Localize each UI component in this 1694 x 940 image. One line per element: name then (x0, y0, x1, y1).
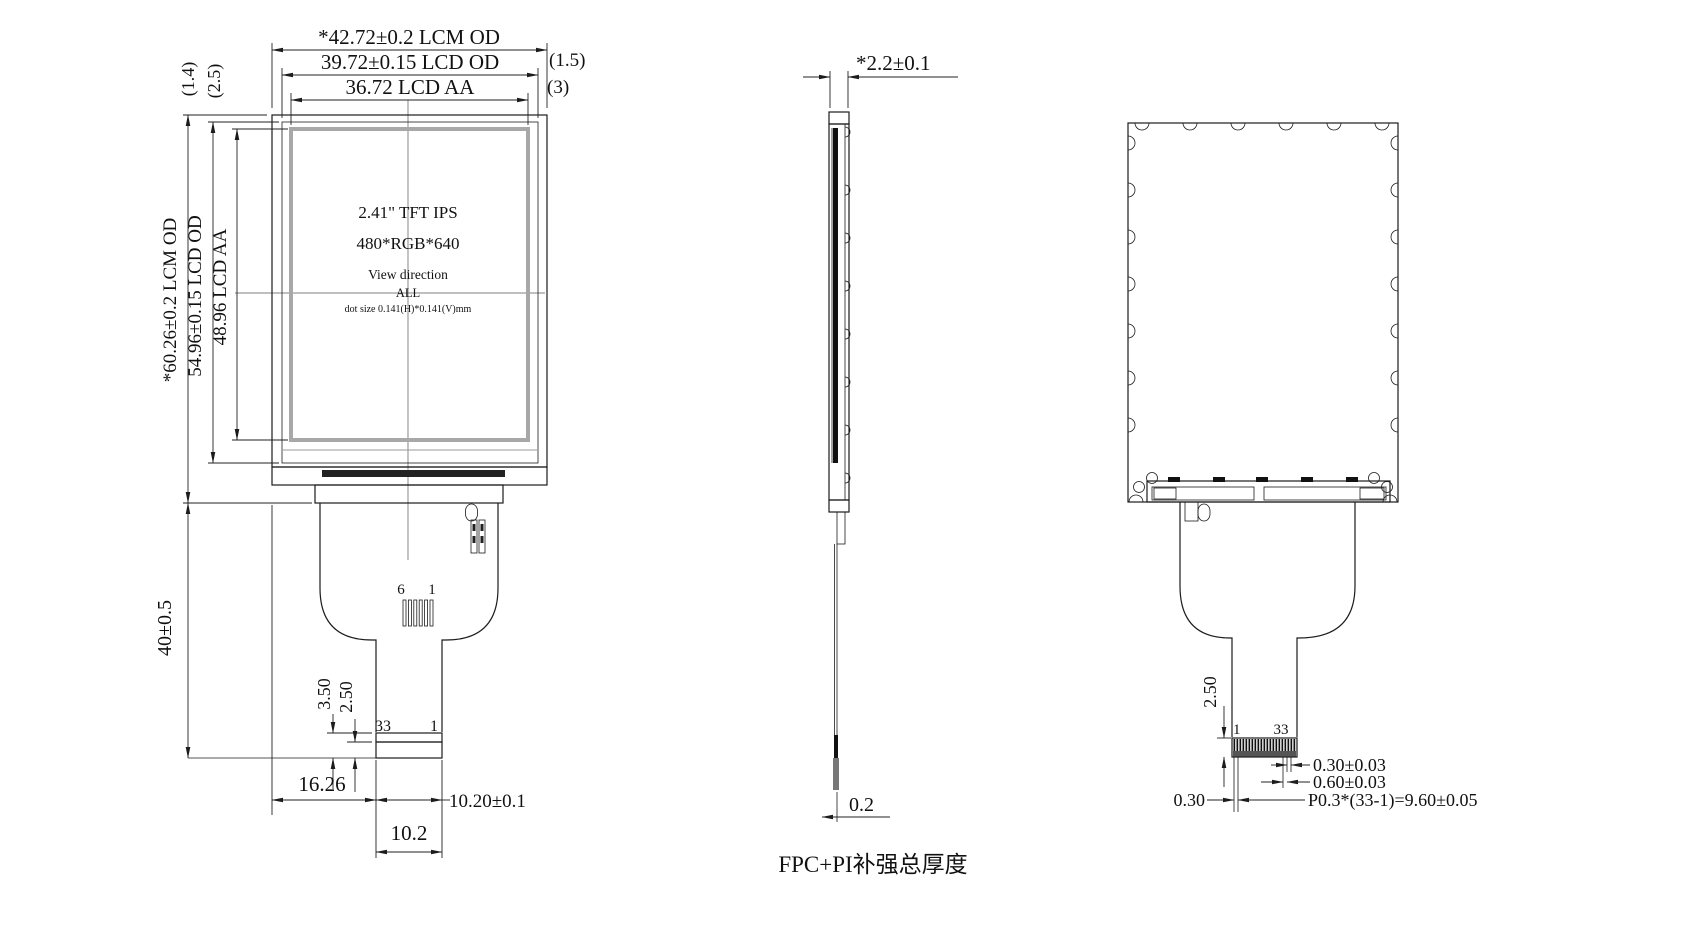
connector-contact-hatch (376, 742, 442, 758)
front-left-dimensions: *60.26±0.2 LCM OD 54.96±0.15 LCD OD 48.9… (154, 115, 376, 758)
side-fpc-fold (837, 512, 845, 544)
dim-lcm-height: *60.26±0.2 LCM OD (160, 218, 181, 383)
dim-right-margin-lcd: (1.5) (549, 50, 585, 71)
fpc-right-edge (442, 503, 498, 732)
dim-stiffener-length: 3.50 (314, 678, 334, 710)
dim-module-thickness: *2.2±0.1 (856, 51, 931, 75)
dim-contact-length: 2.50 (336, 681, 356, 713)
side-glass-edge (833, 128, 838, 463)
panel-resolution-text: 480*RGB*640 (357, 234, 460, 253)
back-pin-dims: 0.30±0.03 0.60±0.03 0.30 P0.3*(33-1)=9.6… (1174, 755, 1478, 812)
side-top-cap (829, 112, 849, 124)
connector-pin-left-label: 33 (375, 718, 391, 735)
side-view: *2.2±0.1 0.2 FPC+PI补强总厚度 (778, 51, 967, 877)
back-fpc-right-edge (1297, 502, 1355, 737)
back-connector-band (1233, 751, 1296, 757)
pad-mark (473, 536, 476, 543)
dim-left-margin-aa: (2.5) (204, 64, 225, 99)
side-view-caption: FPC+PI补强总厚度 (778, 852, 967, 877)
back-bottom-strip (1147, 477, 1390, 502)
active-area-outline (291, 129, 528, 440)
dim-aa-width: 36.72 LCD AA (346, 75, 476, 99)
dim-pitch-total: P0.3*(33-1)=9.60±0.05 (1308, 790, 1478, 811)
back-left-hooks (1128, 136, 1135, 432)
front-view: 6 1 33 1 *42.72±0.2 LCM OD 39.72±0.15 LC… (154, 25, 585, 858)
panel-size-text: 2.41" TFT IPS (358, 203, 457, 222)
back-view: 1 33 2.50 0.30±0.03 0.60±0.03 0.30 (1128, 123, 1478, 812)
dim-tail-offset: 16.26 (298, 772, 345, 796)
dim-right-margin-aa: (3) (547, 77, 569, 98)
lcd-contact-bar (322, 470, 505, 477)
back-pin1-label: 1 (1233, 722, 1241, 738)
dim-aa-height: 48.96 LCD AA (210, 228, 231, 345)
dim-fpc-thickness: 0.2 (849, 794, 874, 816)
test-pads (403, 600, 433, 626)
mechanical-drawing-sheet: 6 1 33 1 *42.72±0.2 LCM OD 39.72±0.15 LC… (0, 0, 1694, 940)
dim-tail-width: 10.2 (391, 821, 428, 845)
back-frame-outline (1128, 123, 1398, 502)
dim-left-margin-lcd: (1.4) (178, 62, 199, 97)
panel-dot-size-text: dot size 0.141(H)*0.141(V)mm (345, 304, 472, 315)
front-top-dimensions: *42.72±0.2 LCM OD 39.72±0.15 LCD OD 36.7… (178, 25, 585, 125)
side-stiffener-gray (833, 758, 839, 790)
front-bottom-dimensions: 16.26 10.20±0.1 10.2 (272, 505, 526, 858)
dim-fpc-length: 40±0.5 (154, 600, 176, 656)
back-connector-pins (1233, 739, 1296, 751)
panel-view-direction-value: ALL (396, 286, 420, 300)
dim-connector-width: 10.20±0.1 (449, 791, 526, 812)
pad-number-right: 1 (428, 582, 436, 598)
fpc-bond-hatch (315, 485, 503, 503)
pad-mark (481, 524, 484, 531)
dim-lcd-height: 54.96±0.15 LCD OD (185, 215, 206, 376)
pad-number-left: 6 (397, 582, 405, 598)
dim-margin: 0.30 (1174, 790, 1206, 810)
connector-pin-right-label: 1 (430, 718, 438, 735)
back-right-hooks (1391, 136, 1398, 432)
back-top-hooks (1135, 123, 1389, 130)
dim-lcm-width: *42.72±0.2 LCM OD (318, 25, 500, 49)
pad-mark (473, 524, 476, 531)
pad-mark (481, 536, 484, 543)
back-fpc-stub (1185, 502, 1198, 521)
back-contact-dim: 2.50 (1200, 676, 1231, 787)
side-stiffener-black (834, 735, 838, 758)
dim-back-contact-length: 2.50 (1200, 676, 1220, 708)
back-pin33-label: 33 (1274, 722, 1289, 738)
dim-lcd-width: 39.72±0.15 LCD OD (321, 50, 499, 74)
drawing-svg: 6 1 33 1 *42.72±0.2 LCM OD 39.72±0.15 LC… (0, 0, 1694, 940)
side-bottom-cap (829, 500, 849, 512)
dim-pin-pair: 0.60±0.03 (1313, 772, 1386, 792)
fpc-hook-outline (466, 504, 478, 521)
panel-view-direction-label: View direction (368, 267, 448, 282)
back-fpc-hook (1198, 504, 1210, 521)
